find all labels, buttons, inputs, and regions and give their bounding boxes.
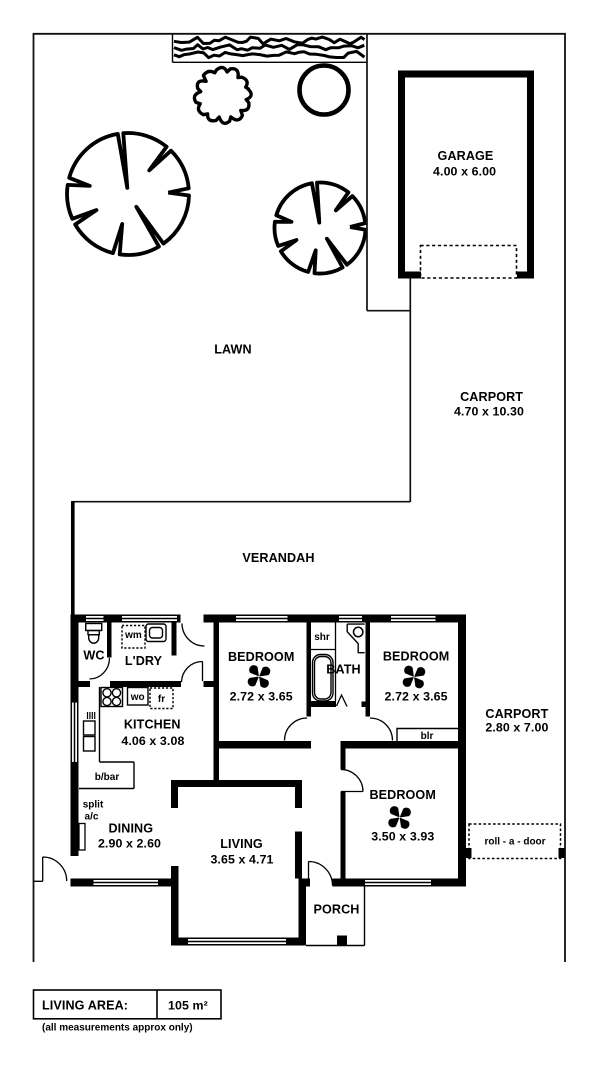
svg-text:105 m²: 105 m² [168,999,208,1013]
svg-text:wm: wm [124,630,142,641]
svg-text:2.90 x 2.60: 2.90 x 2.60 [98,836,161,850]
svg-text:CARPORT: CARPORT [485,707,548,721]
svg-text:BEDROOM: BEDROOM [369,788,435,802]
svg-text:KITCHEN: KITCHEN [124,717,181,731]
svg-text:roll - a - door: roll - a - door [484,836,545,847]
svg-text:DINING: DINING [108,821,153,835]
svg-text:LAWN: LAWN [214,343,251,357]
svg-text:PORCH: PORCH [314,902,360,916]
svg-text:BATH: BATH [326,663,360,677]
svg-text:CARPORT: CARPORT [460,390,523,404]
svg-text:LIVING AREA:: LIVING AREA: [42,999,128,1013]
svg-text:GARAGE: GARAGE [438,149,494,163]
svg-text:2.72 x 3.65: 2.72 x 3.65 [385,690,448,704]
svg-text:2.80 x 7.00: 2.80 x 7.00 [485,721,548,735]
svg-text:(all measurements approx only): (all measurements approx only) [42,1023,193,1034]
svg-text:b/bar: b/bar [95,772,120,783]
svg-text:shr: shr [314,632,330,643]
svg-text:fr: fr [158,694,165,705]
svg-text:3.65 x 4.71: 3.65 x 4.71 [210,853,273,867]
svg-text:L'DRY: L'DRY [125,654,163,668]
svg-text:blr: blr [421,731,434,742]
svg-text:BEDROOM: BEDROOM [228,650,294,664]
svg-text:BEDROOM: BEDROOM [383,649,449,663]
svg-text:WC: WC [83,649,104,663]
svg-text:2.72 x 3.65: 2.72 x 3.65 [230,690,293,704]
svg-text:LIVING: LIVING [220,837,263,851]
svg-text:a/c: a/c [85,812,99,823]
svg-text:wo: wo [130,692,145,703]
svg-text:split: split [83,800,104,811]
svg-text:3.50 x 3.93: 3.50 x 3.93 [371,829,434,843]
svg-text:4.70 x 10.30: 4.70 x 10.30 [454,405,524,419]
svg-text:4.00 x 6.00: 4.00 x 6.00 [433,165,496,179]
svg-text:VERANDAH: VERANDAH [242,551,314,565]
svg-text:4.06 x 3.08: 4.06 x 3.08 [121,734,184,748]
